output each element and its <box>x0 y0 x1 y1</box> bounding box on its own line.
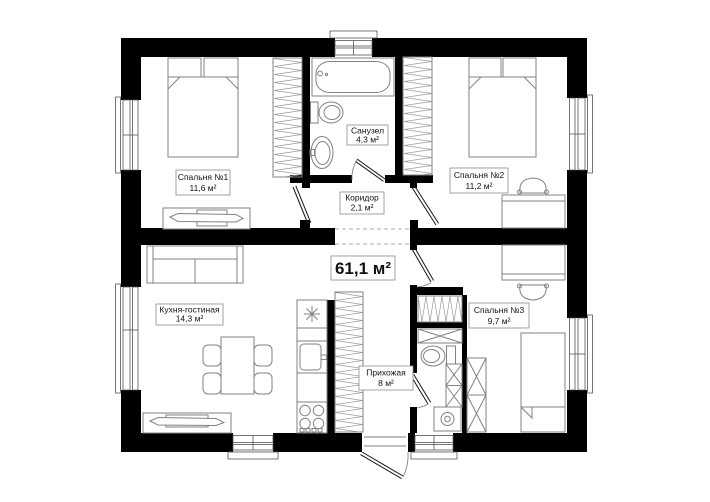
window-bedroom1-left <box>116 97 142 173</box>
bedroom3-wall-left <box>462 295 467 433</box>
hallway-utility-wall-lower <box>410 407 417 433</box>
room-utility <box>418 296 462 431</box>
room-label-bedroom2: Спальня №2 11,2 м² <box>450 168 508 193</box>
tv-stand-icon <box>163 208 250 229</box>
shelf-icon <box>418 296 462 322</box>
room-label-hallway: Прихожая 8 м² <box>359 366 413 390</box>
room-area: 14,3 м² <box>176 314 204 324</box>
utility-wall-top <box>410 287 463 295</box>
desk-icon <box>502 245 565 280</box>
window-bedroom3-right <box>567 315 593 393</box>
corridor-passage-opening <box>335 229 410 244</box>
bathroom-wall-left <box>302 57 310 183</box>
toilet-icon <box>311 102 344 123</box>
toilet-icon <box>421 346 456 366</box>
bathroom-door <box>352 159 385 183</box>
total-area-value: 61,1 м² <box>335 259 391 278</box>
window-kitchen-left <box>116 284 142 393</box>
room-name: Коридор <box>345 193 379 203</box>
floor-plan-canvas: Спальня №1 11,6 м² Санузел 4,3 м² Спальн… <box>0 0 710 502</box>
wardrobe-x-icon <box>467 358 486 432</box>
kitchen-hallway-wall <box>327 300 335 433</box>
bedroom1-door <box>293 186 311 224</box>
wardrobe-icon <box>273 58 302 177</box>
sofa-icon <box>147 246 243 283</box>
wardrobe-icon <box>403 57 432 175</box>
room-area: 11,6 м² <box>190 183 217 193</box>
tv-stand-icon <box>143 413 231 433</box>
corridor-pier-left-top <box>302 183 310 188</box>
bedroom3-door <box>412 248 434 288</box>
washing-machine-icon <box>434 407 461 431</box>
chair-icon <box>518 284 549 300</box>
window-kitchen-bottom <box>228 433 278 459</box>
hallway-utility-wall <box>410 285 417 373</box>
double-bed-icon <box>168 58 238 157</box>
bedroom2-door <box>411 184 439 225</box>
room-label-bedroom1: Спальня №1 11,6 м² <box>176 170 230 195</box>
sink-icon <box>310 137 333 169</box>
total-area-label: 61,1 м² <box>331 256 395 280</box>
utility-shelf-divider <box>417 322 463 328</box>
room-bedroom1 <box>163 58 302 229</box>
window-utility-bottom <box>411 433 457 459</box>
room-bedroom3 <box>467 245 565 432</box>
bathroom-wall-bottom-right <box>385 175 433 183</box>
wardrobe-icon <box>335 292 363 432</box>
cabinet-icon <box>446 364 462 407</box>
room-label-bathroom: Санузел 4,3 м² <box>347 125 388 145</box>
window-bathroom-top <box>330 31 377 57</box>
room-hallway <box>335 292 363 432</box>
utility-door <box>411 374 431 408</box>
window-bedroom2-right <box>567 95 593 173</box>
room-name: Спальня №3 <box>474 305 525 315</box>
dining-table-icon <box>221 337 254 394</box>
room-label-corridor: Коридор 2,1 м² <box>340 192 384 214</box>
middle-wall-right <box>410 228 567 245</box>
room-bathroom <box>310 58 394 169</box>
room-area: 2,1 м² <box>351 203 374 213</box>
single-bed-icon <box>521 333 565 432</box>
corridor-pier-right-bottom <box>410 220 418 228</box>
bathtub-icon <box>312 58 394 96</box>
room-name: Спальня №1 <box>178 172 229 182</box>
hob-icon <box>304 306 320 322</box>
room-label-kitchen-living: Кухня-гостиная 14,3 м² <box>156 304 223 325</box>
room-bedroom2 <box>403 57 565 228</box>
room-area: 11,2 м² <box>466 181 493 191</box>
exterior-wall-bottom <box>121 433 587 452</box>
desk-icon <box>502 195 565 228</box>
chair-icon <box>518 178 549 194</box>
room-area: 9,7 м² <box>488 316 511 326</box>
corridor-pier-left-bottom <box>300 220 310 228</box>
room-label-bedroom3: Спальня №3 9,7 м² <box>469 303 529 328</box>
room-name: Спальня №2 <box>454 170 505 180</box>
storage-box-icon <box>418 329 462 343</box>
floor-plan-page: Спальня №1 11,6 м² Санузел 4,3 м² Спальн… <box>0 0 710 502</box>
room-name: Прихожая <box>366 368 406 378</box>
room-area: 8 м² <box>378 378 394 388</box>
double-bed-icon <box>469 58 536 157</box>
room-kitchen-living <box>143 246 327 433</box>
entrance-door <box>361 433 409 479</box>
room-area: 4,3 м² <box>356 135 379 145</box>
middle-wall-left <box>141 228 335 245</box>
bathroom-wall-right <box>395 57 403 183</box>
